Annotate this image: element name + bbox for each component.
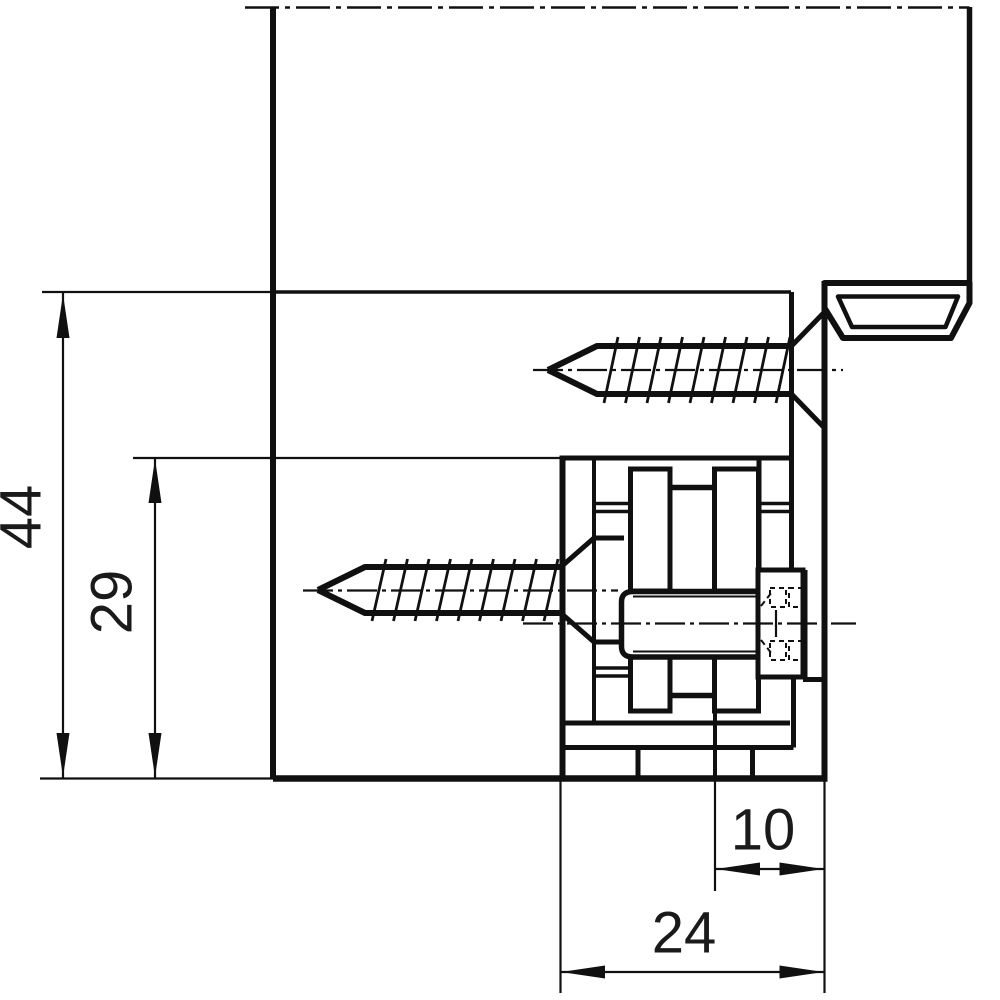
drawing-canvas: 44 29 10 24: [0, 0, 1000, 1000]
arrowhead-up-icon: [57, 294, 70, 338]
arrowhead-down-icon: [149, 733, 162, 777]
dimension-44: 44: [0, 292, 273, 779]
dimension-29: 29: [80, 458, 561, 778]
dimension-label-10: 10: [731, 798, 796, 863]
frame-profile-section: [792, 7, 970, 779]
seal-gasket-groove: [825, 283, 970, 338]
arrowhead-down-icon: [57, 733, 70, 777]
dimension-label-29: 29: [80, 570, 145, 635]
arrowhead-right-icon: [780, 863, 824, 876]
arrowhead-right-icon: [780, 966, 824, 979]
arrowhead-left-icon: [561, 966, 605, 979]
dimension-10: 10: [715, 779, 824, 891]
dimension-label-44: 44: [0, 485, 54, 550]
hinge-section-drawing: 44 29 10 24: [0, 0, 1000, 1000]
dimension-label-24: 24: [652, 901, 717, 966]
arrowhead-up-icon: [149, 459, 162, 503]
arrowhead-left-icon: [716, 863, 760, 876]
